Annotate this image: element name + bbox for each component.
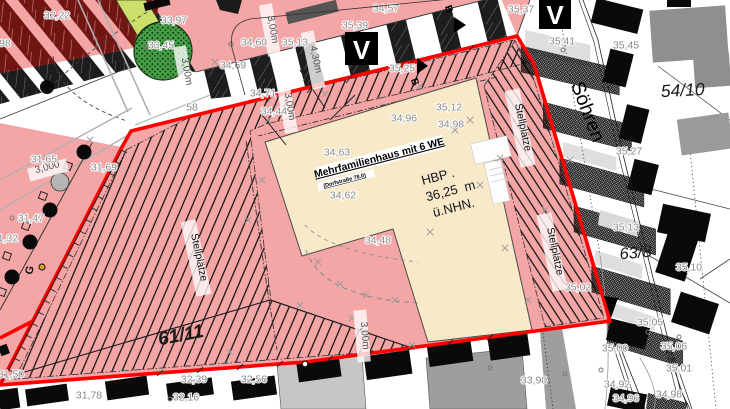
svg-text:31,50: 31,50	[0, 369, 24, 381]
svg-text:31,78: 31,78	[76, 390, 102, 402]
svg-text:34,96: 34,96	[391, 113, 417, 125]
svg-text:31,47: 31,47	[18, 213, 44, 225]
svg-text:31,65: 31,65	[31, 154, 57, 166]
svg-text:54/10: 54/10	[660, 79, 705, 101]
svg-text:32,56: 32,56	[241, 374, 267, 386]
svg-text:35,10: 35,10	[676, 262, 702, 274]
svg-text:35,27: 35,27	[616, 146, 642, 158]
svg-text:34,60: 34,60	[241, 37, 267, 49]
svg-text:34,98: 34,98	[438, 119, 464, 131]
svg-text:34,44: 34,44	[261, 106, 287, 118]
svg-text:35,05: 35,05	[637, 317, 663, 329]
svg-text:35,02: 35,02	[565, 282, 591, 294]
svg-text:35,37: 35,37	[508, 4, 534, 16]
svg-text:1,32: 1,32	[0, 233, 18, 245]
svg-text:34,96: 34,96	[613, 393, 639, 405]
svg-text:31,69: 31,69	[91, 162, 117, 174]
svg-text:35,39: 35,39	[342, 20, 368, 32]
svg-text:32,22: 32,22	[44, 10, 70, 22]
svg-text:58: 58	[186, 102, 198, 114]
svg-text:33,97: 33,97	[161, 15, 187, 27]
svg-text:34,92: 34,92	[604, 379, 630, 391]
svg-text:35,00: 35,00	[602, 343, 628, 355]
svg-text:V: V	[353, 35, 371, 65]
svg-text:35,25: 35,25	[389, 63, 415, 75]
svg-text:35,13: 35,13	[282, 37, 308, 49]
svg-text:34,62: 34,62	[330, 190, 356, 202]
svg-text:33,45: 33,45	[148, 40, 174, 52]
svg-text:63/8: 63/8	[619, 243, 653, 264]
svg-text:98: 98	[0, 38, 11, 50]
svg-text:V: V	[546, 0, 564, 30]
svg-text:32,16: 32,16	[173, 392, 199, 404]
svg-text:35,01: 35,01	[666, 363, 692, 375]
svg-text:35,12: 35,12	[436, 102, 462, 114]
svg-text:35,13: 35,13	[613, 222, 639, 234]
svg-text:34,71: 34,71	[250, 88, 276, 100]
svg-text:34,48: 34,48	[365, 235, 391, 247]
svg-text:35,41: 35,41	[549, 36, 575, 48]
svg-text:32,39: 32,39	[181, 374, 207, 386]
svg-text:34,98: 34,98	[656, 389, 682, 401]
svg-text:34,63: 34,63	[324, 147, 350, 159]
svg-text:35,45: 35,45	[613, 40, 639, 52]
svg-text:35,06: 35,06	[661, 341, 687, 353]
svg-text:33,90: 33,90	[521, 375, 547, 387]
svg-text:34,69: 34,69	[220, 60, 246, 72]
